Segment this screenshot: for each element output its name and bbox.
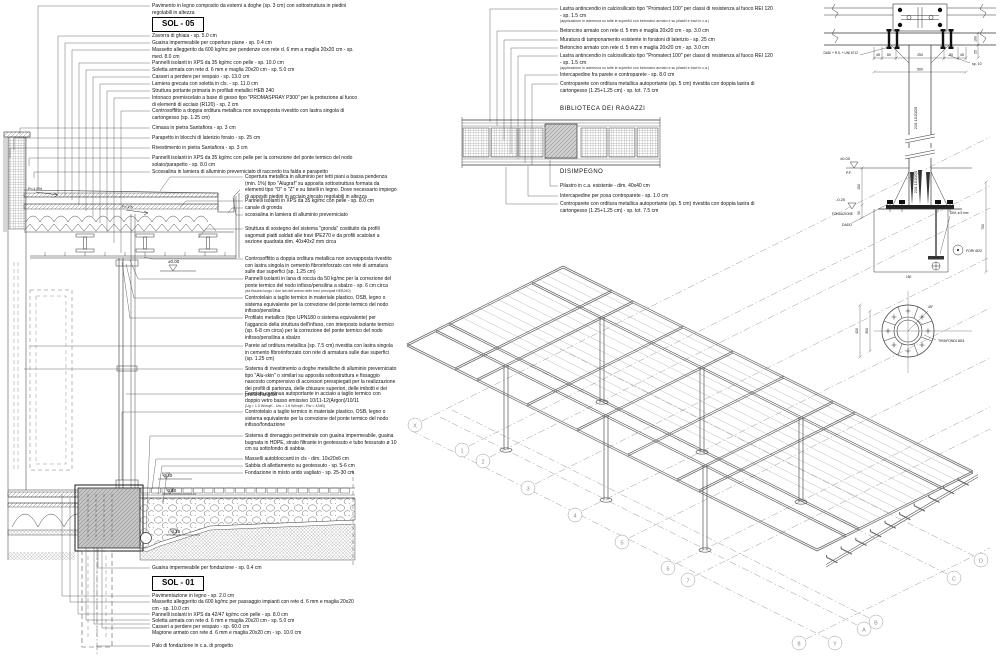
note-right-6: Pannelli isolanti in lana di roccia da 5… bbox=[245, 276, 397, 294]
note-right-2: canale di gronda bbox=[245, 205, 397, 212]
note-right-11-text: Facciata continua autoportante in acciai… bbox=[245, 391, 381, 404]
lamiera-grecata bbox=[24, 224, 216, 231]
dim-420: 420 bbox=[855, 328, 859, 334]
wall-note-0: Lastra antincendio in calciosilicato tip… bbox=[560, 6, 775, 24]
technical-drawing-sheet: ±0.00 -3.40 -3.60 -4.25 P=1.5% P=1% bbox=[0, 0, 1000, 667]
wall-plan-linework bbox=[462, 117, 660, 168]
dim-25: 25 bbox=[974, 50, 978, 54]
washer-label: DIM. ø 5 mm bbox=[950, 211, 969, 215]
left-level-labels: ±0.00 -3.40 -3.60 -4.25 P=1.5% P=1% bbox=[28, 186, 181, 534]
holes-legend bbox=[953, 245, 963, 255]
note-sol05-3: Pannelli isolanti in XPS da 35 kg/mc con… bbox=[152, 60, 358, 67]
anchor-washer bbox=[928, 256, 944, 260]
note-sol05-8: Intonaco premiscelato a base di gesso ti… bbox=[152, 95, 358, 108]
note-sol05-6: Lamiera grecata con soletta in cls. - sp… bbox=[152, 81, 358, 88]
note-right-7: Controtelaio a taglio termico in materia… bbox=[245, 295, 397, 315]
note-right-8: Profilato metallico (tipo UPN180 o siste… bbox=[245, 315, 397, 341]
note-sol05-0: Zavorra di ghiaia - sp. 5.0 cm bbox=[152, 33, 358, 40]
note-deck: Pavimento in legno composito da esterni … bbox=[152, 3, 358, 16]
note-right-4: Struttura di sostegno del sistema "grond… bbox=[245, 226, 397, 246]
dim-100: 100 bbox=[974, 36, 978, 42]
grid-label-3: 3 bbox=[526, 487, 529, 493]
note-right-13: Sistema di drenaggio perimetrale con gua… bbox=[245, 433, 397, 453]
level-m425: -4.25 bbox=[170, 529, 181, 534]
parapet-masonry bbox=[9, 137, 25, 229]
note-right-14: Masselli autobloccanti in cls - dim. 10x… bbox=[245, 456, 397, 463]
wall-plan-leaders bbox=[490, 9, 558, 204]
note-parapet-0: Cimasa in pietra Santafiora - sp. 3 cm bbox=[152, 125, 358, 132]
note-sol05-4: Soletta armata con rete d. 6 mm e maglia… bbox=[152, 67, 358, 74]
wall-note-6: Controparete con orditura metallica auto… bbox=[560, 81, 775, 94]
grid-label-x: X bbox=[413, 424, 417, 430]
baseplate-plan-detail bbox=[859, 291, 973, 373]
joint-detail bbox=[824, 4, 996, 148]
grid-label-8: 8 bbox=[797, 642, 800, 648]
axo-roof-beams bbox=[407, 266, 973, 551]
note-sol05-2: Massetto alleggerito da 600 kg/mc per pe… bbox=[152, 47, 358, 60]
level-markers bbox=[36, 192, 200, 535]
curtain-wall bbox=[116, 214, 138, 492]
grid-label-5: 5 bbox=[620, 541, 623, 547]
grid-bubbles bbox=[408, 418, 988, 650]
dim-300: 300 bbox=[865, 328, 869, 334]
grid-label-6: 6 bbox=[666, 567, 669, 573]
axo-purlins bbox=[826, 475, 978, 568]
column-section-label-upper: 219.1X20/25 bbox=[913, 106, 918, 129]
wall-note-5: Intercapedine fra parete e controparete … bbox=[560, 72, 775, 79]
note-right-11: Facciata continua autoportante in acciai… bbox=[245, 391, 397, 409]
base-level-found: -0.20 bbox=[836, 197, 846, 202]
note-right-3: scossalina in lamiera di alluminio preve… bbox=[245, 212, 397, 219]
nut-label: DADO bbox=[842, 223, 852, 227]
dim-80-right: 80 bbox=[949, 53, 953, 57]
gutter-channel bbox=[218, 193, 234, 212]
drawing-linework: ±0.00 -3.40 -3.60 -4.25 P=1.5% P=1% bbox=[0, 0, 1000, 667]
vespaio-casseri bbox=[26, 216, 208, 222]
leaders-parapet bbox=[10, 128, 150, 178]
note-sol05-5: Casseri a perdere per vespaio - sp. 13.0… bbox=[152, 74, 358, 81]
wall-note-1: Betoncino armato con rete d. 5 mm e magl… bbox=[560, 28, 775, 35]
column-section-label-lower: 219.1X20/25 bbox=[913, 170, 918, 193]
base-plate bbox=[886, 205, 954, 209]
room-label-biblioteca: BIBLIOTECA DEI RAGAZZI bbox=[560, 106, 645, 114]
base-level-zero: ±0.00 bbox=[840, 156, 851, 161]
base-level-found-sub: FONDAZIONE bbox=[832, 212, 853, 216]
wall-note-0-sub: (applicazione in aderenza su tutte le su… bbox=[560, 19, 775, 24]
wall-lower-note-1: Intercapedine per posa controparete - sp… bbox=[560, 193, 775, 200]
dim-700: 700 bbox=[981, 224, 985, 230]
dim-50: 50 bbox=[857, 211, 861, 215]
grid-label-7: 7 bbox=[686, 579, 689, 585]
grid-label-b: B bbox=[874, 621, 878, 627]
cimasa-cap bbox=[4, 132, 30, 137]
note-right-9: Parete ad orditura metallica (sp. 7.5 cm… bbox=[245, 343, 397, 363]
sol05-title: SOL - 05 bbox=[152, 17, 204, 32]
wall-note-0-text: Lastra antincendio in calciosilicato tip… bbox=[560, 6, 773, 19]
grid-label-d: D bbox=[979, 559, 983, 565]
anchors-label: TIRAFONDI Ø24 bbox=[938, 339, 965, 343]
note-sol05-9: Controsoffitto a doppia orditura metalli… bbox=[152, 108, 358, 121]
wall-lower-note-0: Pilastro in c.a. esistente - dim. 40x40 … bbox=[560, 183, 775, 190]
grid-label-2: 2 bbox=[481, 460, 484, 466]
grid-label-y: Y bbox=[833, 642, 837, 648]
holes-label: FORI Ø22 bbox=[966, 249, 982, 253]
drain-pipe bbox=[141, 533, 152, 544]
level-zero: ±0.00 bbox=[168, 259, 180, 264]
base-level-zero-sub: P.F. bbox=[846, 171, 852, 175]
note-right-6-sub: (da fissarsi lungo i due lati dell'anima… bbox=[245, 289, 397, 294]
grid-label-c: C bbox=[952, 577, 956, 583]
note-sol01-1: Massetto alleggerito da 600 kg/mc per pa… bbox=[152, 599, 358, 612]
wall-note-3: Betoncino armato con rete d. 5 mm e magl… bbox=[560, 45, 775, 52]
level-m360: -3.60 bbox=[166, 488, 177, 493]
wall-note-2: Muratura di tamponamento esistente in fo… bbox=[560, 37, 775, 44]
note-parapet-1: Parapetto in blocchi di laterizio forato… bbox=[152, 135, 358, 142]
dim-500: 500 bbox=[917, 68, 923, 72]
beam-bolts bbox=[887, 29, 954, 49]
dim-150b: 150 bbox=[906, 275, 912, 279]
note-sol01-5: Magrone armato con rete d. 6 mm e maglia… bbox=[152, 630, 358, 637]
note-sol05-1: Guaina impermeabile per coperture piane … bbox=[152, 40, 358, 47]
dim-250: 250 bbox=[917, 53, 923, 57]
room-label-disimpegno: DISIMPEGNO bbox=[560, 169, 603, 177]
anchor-end-symbol bbox=[932, 262, 940, 270]
dim-45-left: 45 bbox=[876, 53, 880, 57]
dim-150: 150 bbox=[857, 184, 861, 190]
base-detail-labels: ±0.00 P.F. -0.20 FONDAZIONE DADO DIM. ø … bbox=[832, 156, 985, 279]
note-sol05-7: Struttura portante primaria in profilati… bbox=[152, 88, 358, 95]
slope-label-b: P=1% bbox=[122, 204, 133, 209]
slope-label-a: P=1.5% bbox=[28, 186, 43, 191]
grid-label-1: 1 bbox=[460, 449, 463, 455]
grid-label-a: A bbox=[862, 628, 866, 634]
note-parapet-3: Pannelli isolanti in XPS da 35 kg/mc con… bbox=[152, 155, 358, 168]
heb-beams bbox=[76, 234, 217, 252]
dim-80-left: 80 bbox=[887, 53, 891, 57]
note-parapet-2: Rivestimento in pietra Santafiora - sp. … bbox=[152, 145, 358, 152]
bolt-spec-label: DADI + R.S. + UNI 5712 bbox=[823, 51, 858, 55]
leaders-right-notes bbox=[24, 177, 243, 532]
note-right-0: Copertura metallica in alluminio per tet… bbox=[245, 174, 397, 200]
note-sol01-post: Palo di fondazione in c.a. di progetto bbox=[152, 643, 358, 650]
wall-lower-note-2: Controparete con orditura metallica auto… bbox=[560, 201, 775, 214]
plate-thickness-label: sp. 10 bbox=[972, 62, 982, 66]
note-right-12: Controtelaio a taglio termico in materia… bbox=[245, 409, 397, 429]
axo-bubble-labels: X 1 2 3 4 5 6 7 8 Y A B C D bbox=[413, 424, 983, 648]
note-right-15: Sabbia di allettamento su geotessuto - s… bbox=[245, 463, 397, 470]
wall-note-4-text: Lastra antincendio in calciosilicato tip… bbox=[560, 53, 773, 66]
level-m340: -3.40 bbox=[162, 473, 173, 478]
foundation-outline bbox=[874, 209, 948, 272]
angle-label: 45° bbox=[928, 305, 934, 309]
note-sol01-pre: Guaina impermeabile per fondazione - sp.… bbox=[152, 565, 358, 572]
note-right-5: Controsoffitto a doppia orditura metalli… bbox=[245, 256, 397, 276]
note-right-6-text: Pannelli isolanti in lana di roccia da 5… bbox=[245, 276, 391, 289]
sol01-title: SOL - 01 bbox=[152, 576, 204, 591]
wall-note-4: Lastra antincendio in calciosilicato tip… bbox=[560, 53, 775, 71]
wall-note-4-sub: (applicazione in aderenza su tutte le su… bbox=[560, 66, 775, 71]
axo-columns bbox=[500, 317, 807, 552]
axo-roof-joists bbox=[461, 270, 965, 522]
note-right-16: Fondazione in misto arido vagliato - sp.… bbox=[245, 470, 397, 477]
leaders-sol05 bbox=[38, 6, 150, 253]
note-right-1: Pannelli isolanti in XPS da 35 kg/mc con… bbox=[245, 198, 397, 205]
dim-45-right: 45 bbox=[960, 53, 964, 57]
grid-label-4: 4 bbox=[573, 514, 576, 520]
